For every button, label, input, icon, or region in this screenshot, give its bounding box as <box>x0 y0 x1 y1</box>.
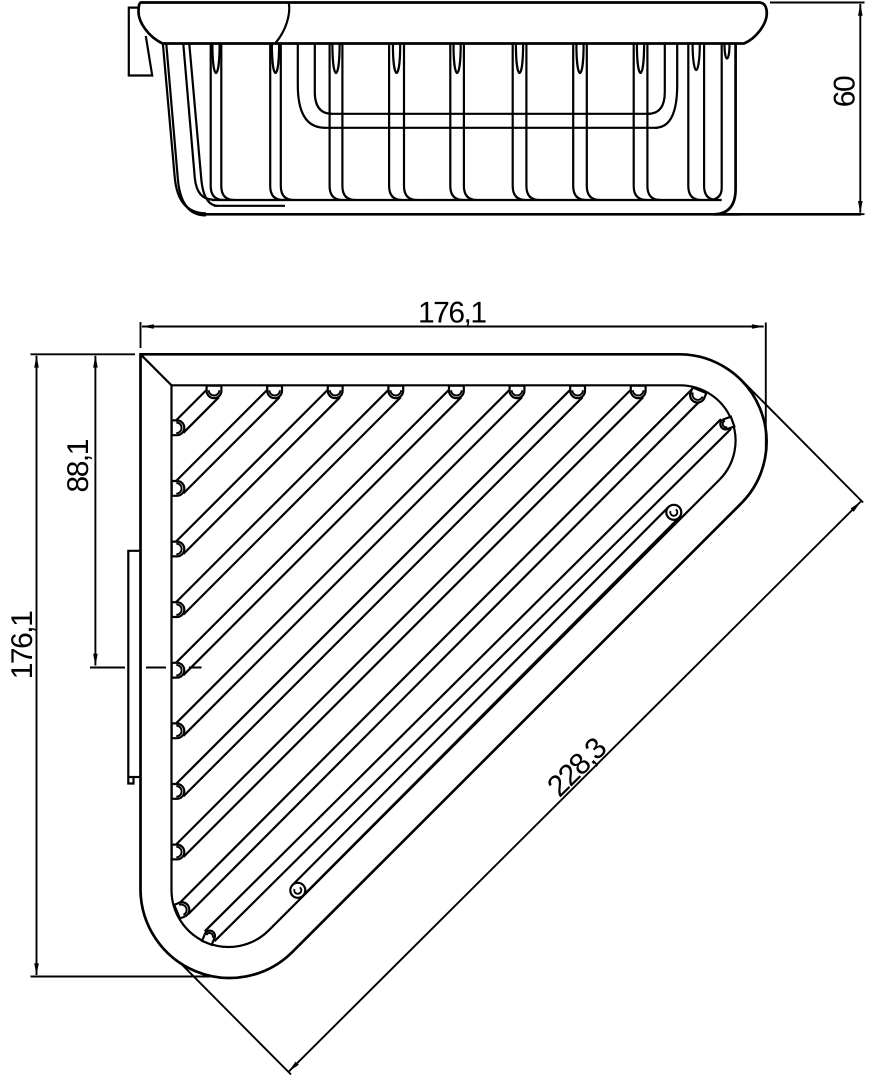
svg-text:176,1: 176,1 <box>6 611 39 679</box>
svg-text:176,1: 176,1 <box>418 296 486 329</box>
svg-text:60: 60 <box>829 76 862 107</box>
svg-text:88,1: 88,1 <box>62 439 95 492</box>
